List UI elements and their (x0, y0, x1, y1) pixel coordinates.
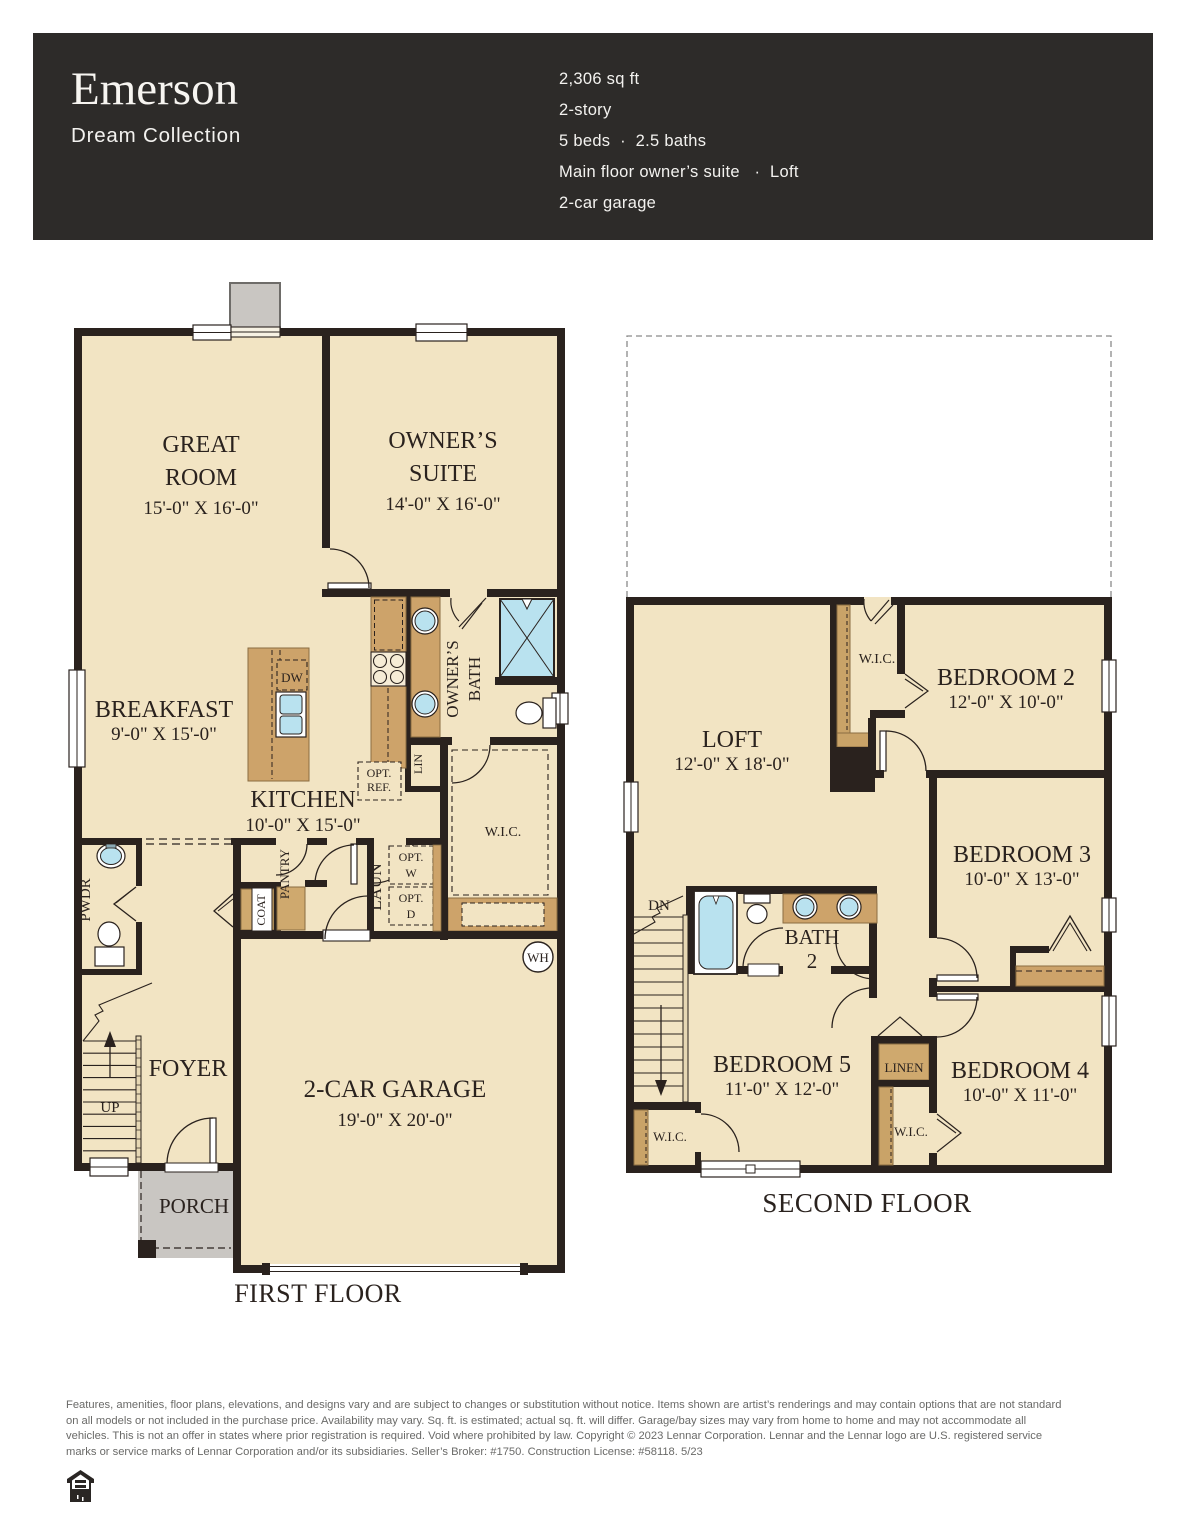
svg-text:LAUN: LAUN (366, 863, 385, 910)
svg-text:OPT.: OPT. (399, 850, 424, 864)
svg-text:10'-0" X 11'-0": 10'-0" X 11'-0" (963, 1085, 1078, 1106)
svg-text:UP: UP (100, 1100, 119, 1116)
svg-text:LINEN: LINEN (885, 1060, 925, 1075)
svg-text:12'-0" X 10'-0": 12'-0" X 10'-0" (948, 692, 1063, 713)
svg-text:W.I.C.: W.I.C. (653, 1129, 687, 1144)
svg-text:W: W (405, 866, 417, 880)
svg-text:BEDROOM 5: BEDROOM 5 (713, 1052, 851, 1078)
svg-text:ROOM: ROOM (165, 465, 237, 491)
svg-text:Dream Collection: Dream Collection (71, 124, 241, 147)
svg-text:GREAT: GREAT (162, 432, 240, 458)
svg-text:14'-0" X 16'-0": 14'-0" X 16'-0" (385, 494, 500, 515)
svg-text:LIN: LIN (411, 754, 425, 774)
svg-text:OWNER’S: OWNER’S (443, 640, 462, 717)
svg-text:BATH: BATH (785, 925, 840, 949)
svg-text:PORCH: PORCH (159, 1194, 229, 1218)
svg-text:COAT: COAT (254, 894, 268, 926)
svg-text:2: 2 (807, 949, 818, 973)
svg-text:SECOND FLOOR: SECOND FLOOR (762, 1188, 971, 1218)
svg-text:D: D (407, 907, 416, 921)
svg-text:SUITE: SUITE (409, 461, 477, 487)
svg-text:2-story: 2-story (559, 101, 612, 119)
svg-text:Main floor owner’s suite ·: Main floor owner’s suite · Loft (559, 163, 799, 181)
svg-text:Emerson: Emerson (71, 63, 238, 115)
svg-text:OWNER’S: OWNER’S (388, 428, 497, 454)
svg-text:15'-0" X 16'-0": 15'-0" X 16'-0" (143, 498, 258, 519)
svg-text:LOFT: LOFT (702, 727, 762, 753)
svg-text:5 beds · 2.5 baths: 5 beds · 2.5 baths (559, 132, 706, 150)
svg-text:2-car garage: 2-car garage (559, 194, 656, 212)
svg-text:11'-0" X 12'-0": 11'-0" X 12'-0" (725, 1079, 840, 1100)
svg-text:WH: WH (527, 950, 549, 965)
svg-text:PANTRY: PANTRY (277, 848, 292, 899)
svg-text:W.I.C.: W.I.C. (894, 1124, 928, 1139)
svg-text:BATH: BATH (465, 657, 484, 701)
svg-text:W.I.C.: W.I.C. (859, 652, 895, 667)
svg-text:KITCHEN: KITCHEN (250, 787, 355, 813)
svg-text:9'-0" X 15'-0": 9'-0" X 15'-0" (111, 724, 217, 745)
svg-text:BEDROOM 3: BEDROOM 3 (953, 842, 1091, 868)
svg-text:BREAKFAST: BREAKFAST (95, 697, 234, 723)
svg-text:19'-0" X 20'-0": 19'-0" X 20'-0" (337, 1110, 452, 1131)
svg-text:12'-0" X 18'-0": 12'-0" X 18'-0" (674, 754, 789, 775)
svg-text:10'-0" X 15'-0": 10'-0" X 15'-0" (245, 815, 360, 836)
svg-text:PWDR: PWDR (78, 878, 94, 921)
svg-text:2-CAR GARAGE: 2-CAR GARAGE (304, 1076, 487, 1103)
svg-text:DW: DW (281, 670, 303, 685)
svg-text:W.I.C.: W.I.C. (485, 825, 521, 840)
svg-text:OPT.: OPT. (399, 891, 424, 905)
svg-text:BEDROOM 2: BEDROOM 2 (937, 665, 1075, 691)
svg-text:REF.: REF. (367, 780, 391, 794)
svg-text:2,306 sq ft: 2,306 sq ft (559, 70, 639, 88)
svg-text:FIRST FLOOR: FIRST FLOOR (234, 1279, 402, 1308)
svg-text:DN: DN (648, 898, 670, 914)
svg-text:BEDROOM 4: BEDROOM 4 (951, 1058, 1089, 1084)
svg-text:FOYER: FOYER (149, 1056, 228, 1082)
svg-text:OPT.: OPT. (367, 766, 392, 780)
svg-text:10'-0" X 13'-0": 10'-0" X 13'-0" (964, 869, 1079, 890)
